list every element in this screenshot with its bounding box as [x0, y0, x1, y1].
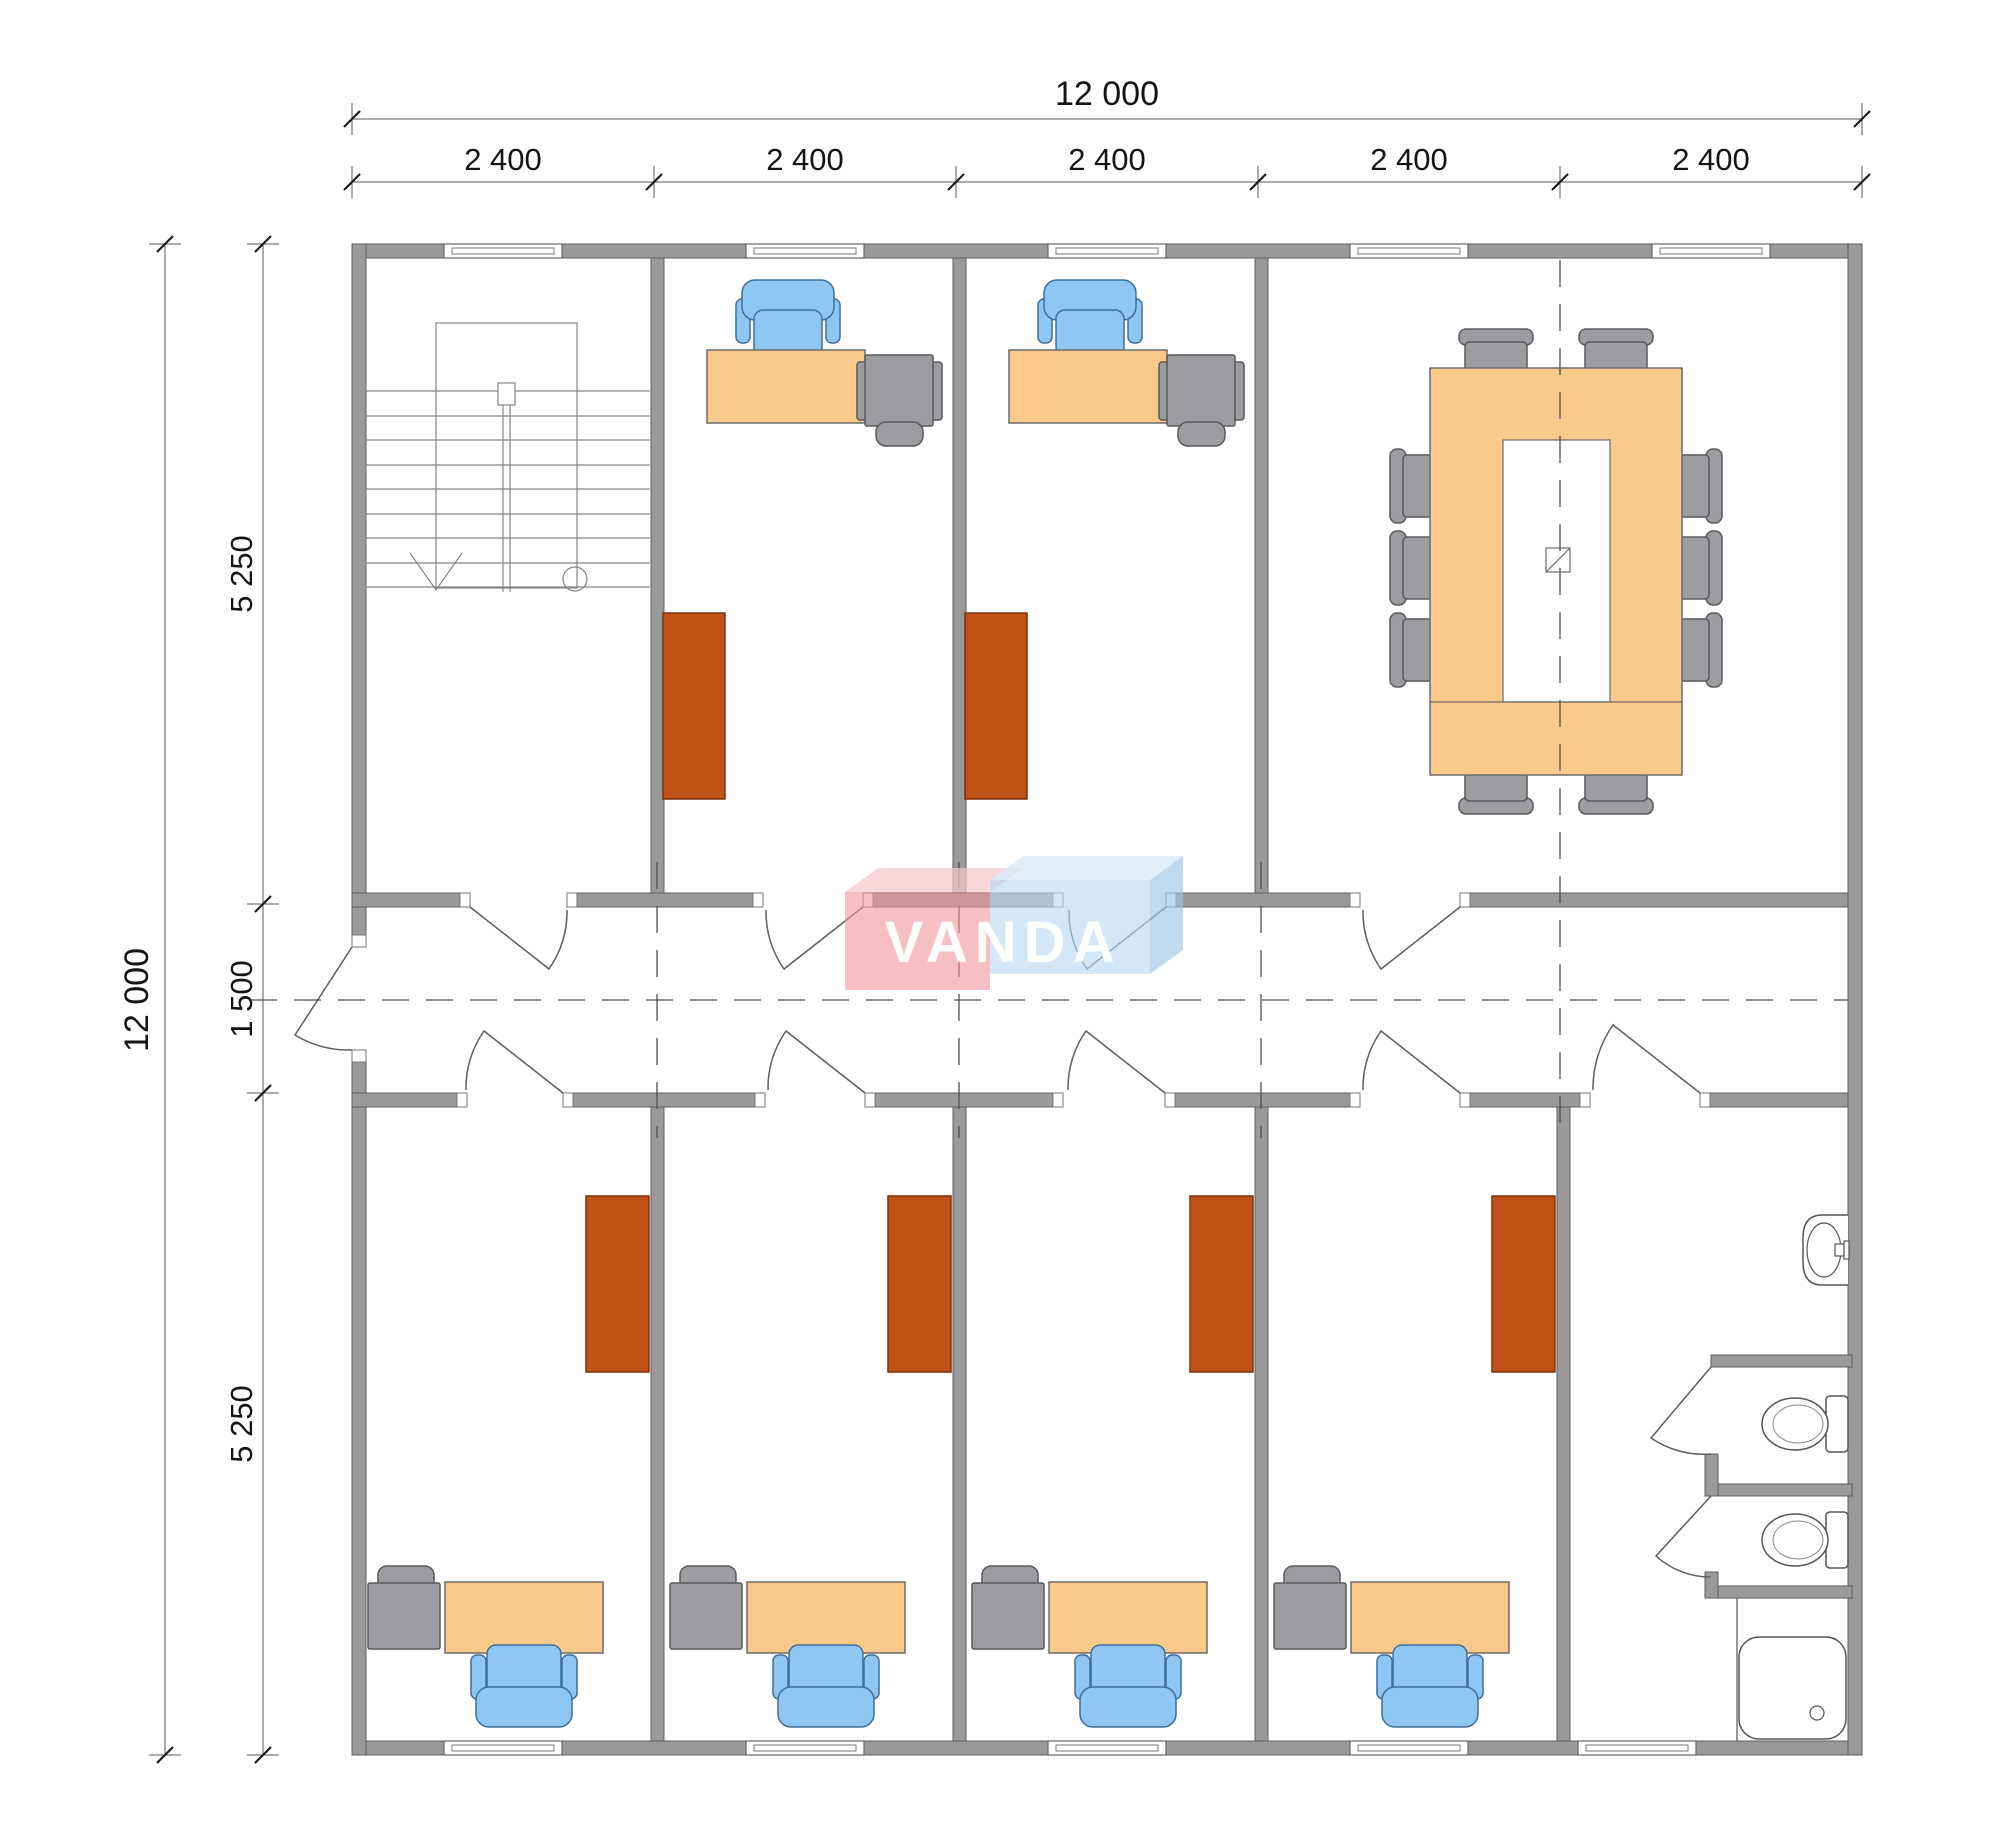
conference-chair	[1678, 531, 1722, 605]
wall-stall-partition	[1711, 1484, 1852, 1496]
conference-chair	[1459, 770, 1533, 814]
dim-bay-1: 2 400	[464, 142, 542, 177]
window	[1652, 244, 1770, 258]
toilet	[1762, 1396, 1848, 1452]
wall-exterior-left	[352, 244, 366, 935]
furniture	[368, 280, 1849, 1741]
window	[444, 1741, 562, 1755]
conference-chair	[1390, 613, 1434, 687]
conference-chair	[1390, 449, 1434, 523]
stairwell	[366, 323, 650, 592]
door-stall	[1651, 1367, 1711, 1454]
door-office	[768, 1031, 865, 1093]
wall-corridor-bottom	[875, 1093, 1053, 1107]
cabinet	[1492, 1196, 1555, 1372]
door-office	[1068, 1031, 1165, 1093]
wall-interior	[651, 258, 664, 907]
dim-bay-5: 2 400	[1672, 142, 1750, 177]
window	[746, 1741, 864, 1755]
wall-stall-stub	[1705, 1572, 1718, 1598]
stair-flight-outline	[436, 323, 577, 588]
wall-corridor-bottom	[1710, 1093, 1848, 1107]
wall-corridor-top	[577, 893, 753, 907]
cabinet	[663, 613, 725, 799]
door-office	[1363, 1031, 1460, 1093]
shower-tray	[1739, 1637, 1846, 1739]
wall-exterior-left	[352, 1062, 366, 1755]
window	[444, 244, 562, 258]
window	[1350, 1741, 1468, 1755]
wall-corridor-top	[1470, 893, 1848, 907]
wall-exterior-right	[1848, 244, 1862, 1755]
logo-blue-top-face	[990, 856, 1183, 880]
door-conference	[1363, 907, 1460, 969]
wall-stall-partition	[1711, 1355, 1852, 1367]
conference-chair	[1459, 329, 1533, 373]
dim-bay-2: 2 400	[766, 142, 844, 177]
dim-bay-3: 2 400	[1068, 142, 1146, 177]
desk-set	[670, 1566, 905, 1727]
window	[1350, 244, 1468, 258]
conference-chair	[1390, 531, 1434, 605]
wall-interior	[953, 258, 966, 907]
door-entrance	[295, 947, 352, 1050]
wall-interior	[1255, 1093, 1268, 1741]
dim-left-seg-3: 5 250	[224, 1385, 259, 1463]
conference-set	[1390, 329, 1722, 814]
wall-interior	[651, 1093, 664, 1741]
wall-corridor-top	[1176, 893, 1350, 907]
dim-left-seg-2: 1 500	[224, 960, 259, 1038]
desk-set	[368, 1566, 603, 1727]
conference-chair	[1579, 770, 1653, 814]
cabinet	[1190, 1196, 1253, 1372]
conference-chair	[1579, 329, 1653, 373]
wall-interior	[1255, 258, 1268, 907]
cabinet	[888, 1196, 951, 1372]
floor-plan-drawing: 12 000 2 400 2 400 2 400 2 400 2 400 12 …	[0, 0, 2000, 1848]
conference-chair	[1678, 613, 1722, 687]
cabinet	[586, 1196, 649, 1372]
toilet	[1762, 1512, 1848, 1568]
desk-set	[1009, 280, 1244, 446]
logo-text: VANDA	[885, 910, 1122, 975]
wall-corridor-bottom	[352, 1093, 457, 1107]
bathroom-fixtures	[1737, 1215, 1849, 1741]
floor-plan-canvas: 12 000 2 400 2 400 2 400 2 400 2 400 12 …	[0, 0, 2000, 1848]
desk-set	[707, 280, 942, 446]
door-bathroom	[1593, 1025, 1700, 1093]
window	[746, 244, 864, 258]
window	[1048, 1741, 1166, 1755]
dim-top-total: 12 000	[1055, 75, 1159, 113]
wall-interior	[953, 1093, 966, 1741]
vanda-logo: VANDA	[845, 856, 1183, 990]
wall-corridor-bottom	[1175, 1093, 1350, 1107]
door-office	[466, 1031, 563, 1093]
desk-set	[972, 1566, 1207, 1727]
wall-corridor-bottom	[573, 1093, 755, 1107]
dim-left-total: 12 000	[118, 948, 156, 1052]
sink-faucet	[1844, 1241, 1849, 1259]
wall-corridor-top	[352, 893, 460, 907]
dim-left-seg-1: 5 250	[224, 535, 259, 613]
sink-faucet	[1835, 1244, 1844, 1256]
stair-rail-post	[498, 383, 515, 405]
wall-stall-partition	[1711, 1586, 1852, 1598]
conference-chair	[1678, 449, 1722, 523]
stair-treads	[366, 391, 650, 587]
cabinets	[586, 613, 1555, 1372]
wall-interior	[1557, 1093, 1570, 1741]
wall-corridor-bottom	[1470, 1093, 1580, 1107]
window	[1578, 1741, 1696, 1755]
door-stall	[1656, 1496, 1711, 1577]
window	[1048, 244, 1166, 258]
door-stairwell	[470, 907, 567, 969]
dim-bay-4: 2 400	[1370, 142, 1448, 177]
wall-stall-stub	[1705, 1454, 1718, 1496]
cabinet	[965, 613, 1027, 799]
desk-set	[1274, 1566, 1509, 1727]
